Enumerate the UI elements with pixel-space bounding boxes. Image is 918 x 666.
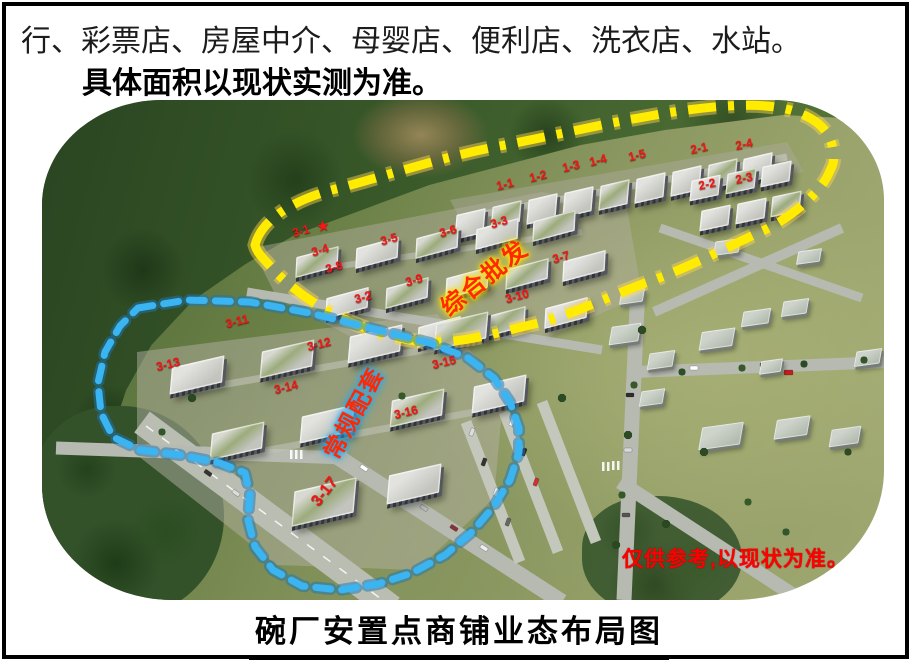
footer-title: 碗厂安置点商铺业态布局图 xyxy=(0,606,918,660)
zone-outlines xyxy=(42,100,884,600)
site-plan-photo xyxy=(42,100,884,600)
intro-line-2: 具体面积以现状实测为准。 xyxy=(82,58,442,102)
intro-line-1: 行、彩票店、房屋中介、母婴店、便利店、洗衣店、水站。 xyxy=(21,16,801,60)
footer-title-text: 碗厂安置点商铺业态布局图 xyxy=(249,606,669,660)
page-root: 行、彩票店、房屋中介、母婴店、便利店、洗衣店、水站。 具体面积以现状实测为准。 xyxy=(0,0,918,666)
